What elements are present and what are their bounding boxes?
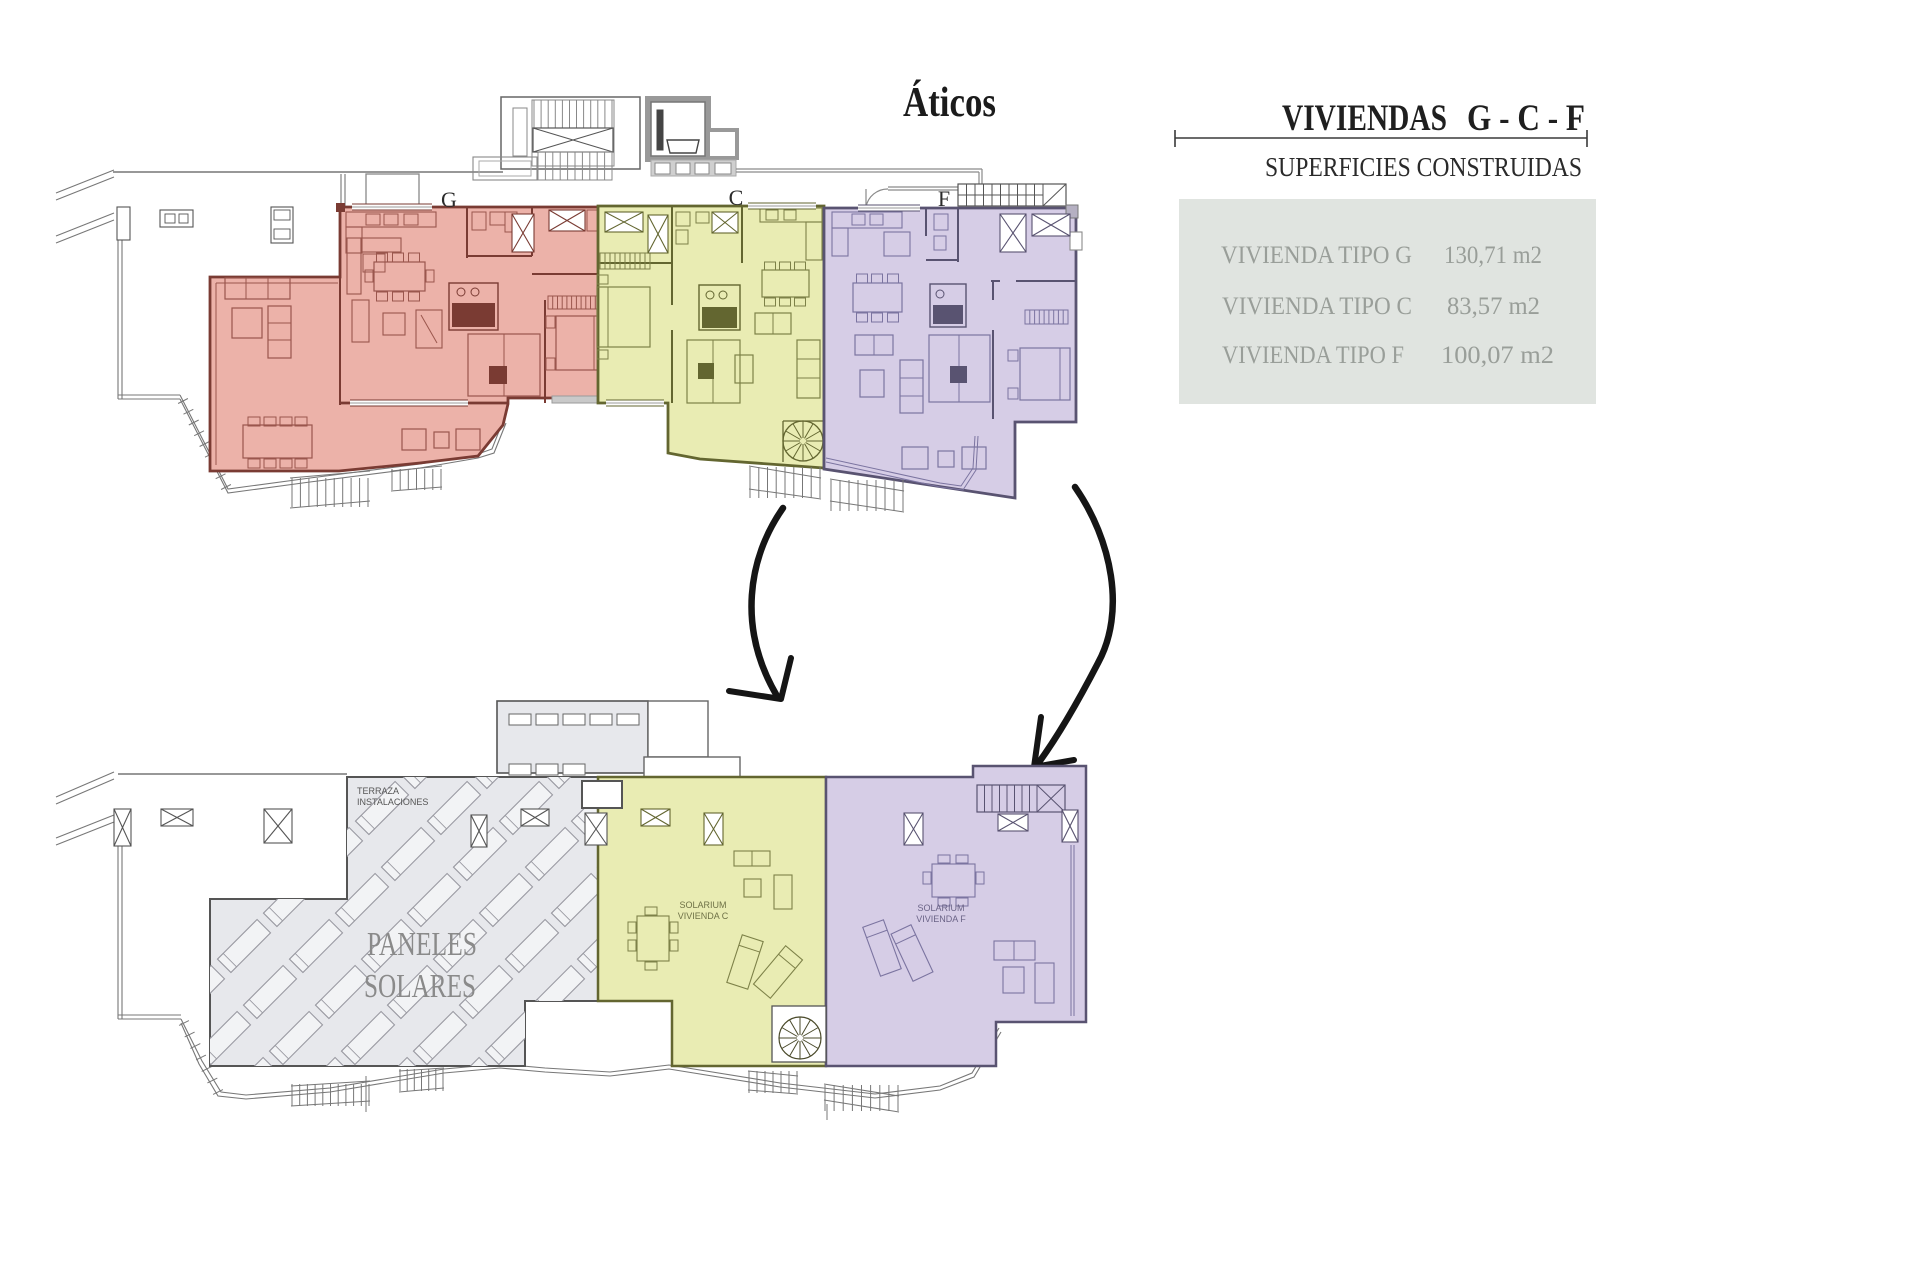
svg-text:F: F [938, 186, 950, 211]
svg-text:VIVIENDA TIPO C: VIVIENDA TIPO C [1222, 293, 1412, 320]
svg-text:SOLARIUM: SOLARIUM [917, 903, 964, 913]
svg-text:83,57 m2: 83,57 m2 [1447, 293, 1540, 320]
svg-text:SOLARIUM: SOLARIUM [679, 900, 726, 910]
svg-text:C: C [729, 185, 744, 210]
svg-text:VIVIENDA F: VIVIENDA F [916, 914, 966, 924]
svg-text:Áticos: Áticos [903, 79, 996, 126]
svg-text:SUPERFICIES CONSTRUIDAS: SUPERFICIES CONSTRUIDAS [1265, 152, 1582, 182]
svg-text:G: G [441, 187, 457, 212]
svg-text:100,07 m2: 100,07 m2 [1441, 342, 1554, 369]
svg-text:VIVIENDA C: VIVIENDA C [678, 911, 729, 921]
svg-text:VIVIENDA TIPO F: VIVIENDA TIPO F [1222, 342, 1404, 369]
svg-text:INSTALACIONES: INSTALACIONES [357, 797, 428, 807]
svg-text:VIVIENDAS: VIVIENDAS [1282, 98, 1447, 139]
svg-text:G - C - F: G - C - F [1467, 98, 1585, 139]
svg-text:SOLARES: SOLARES [364, 968, 476, 1005]
svg-text:TERRAZA: TERRAZA [357, 786, 399, 796]
svg-text:PANELES: PANELES [367, 926, 477, 963]
svg-text:VIVIENDA TIPO G: VIVIENDA TIPO G [1221, 242, 1412, 269]
svg-text:130,71 m2: 130,71 m2 [1444, 242, 1542, 269]
